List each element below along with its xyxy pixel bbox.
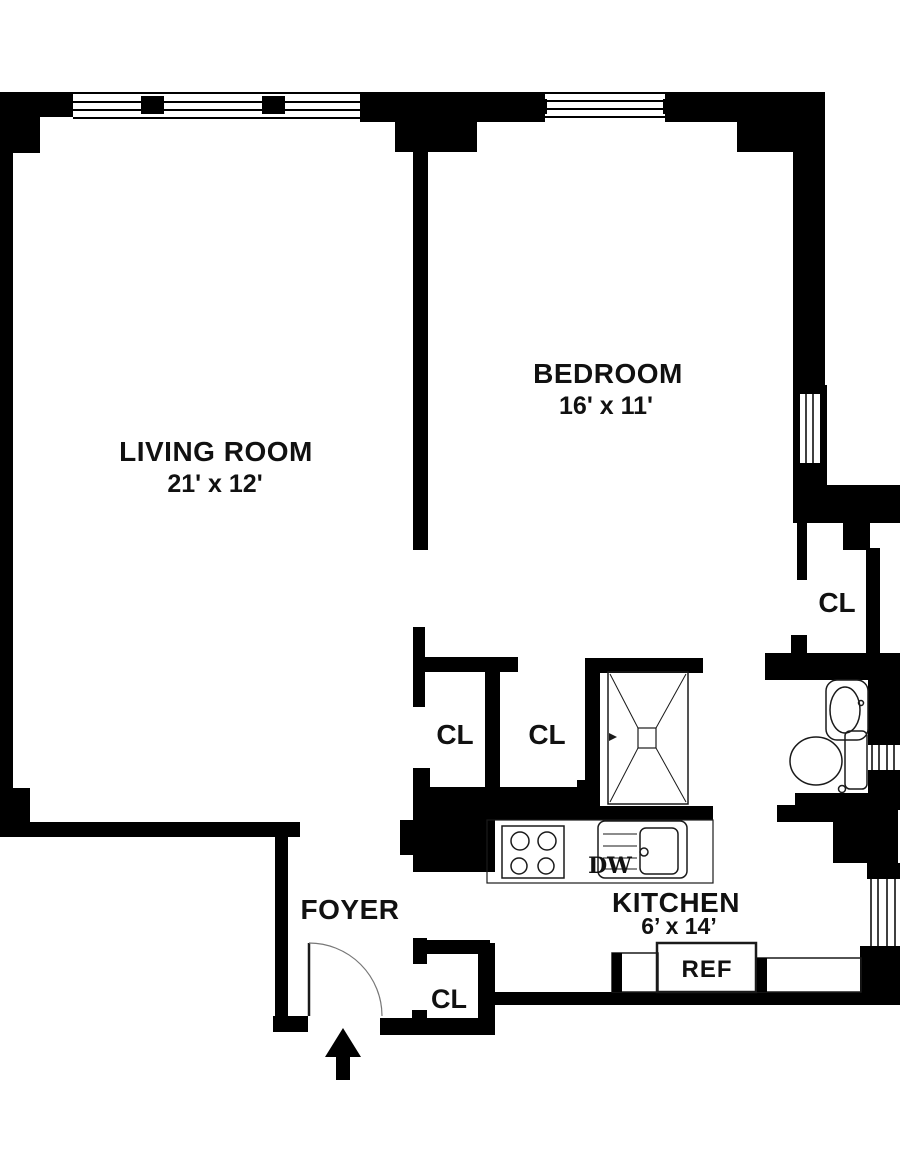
room-label-living-room: LIVING ROOM — [119, 436, 313, 467]
wall-segment — [765, 653, 900, 680]
room-label-foyer: FOYER — [301, 894, 400, 925]
dishwasher-label: DW — [588, 853, 632, 879]
wall-segment — [380, 1018, 495, 1035]
wall-segment — [413, 787, 600, 808]
wall-segment — [793, 485, 900, 523]
wall-segment — [833, 805, 898, 863]
kitchen-counter-right — [757, 958, 861, 992]
wall-segment — [577, 780, 600, 805]
wall-segment — [868, 770, 900, 810]
closet-label-hall-mid: CL — [528, 719, 565, 750]
stove — [502, 826, 564, 878]
wall-segment — [413, 627, 425, 707]
closet-label-hall-left: CL — [436, 719, 473, 750]
wall-segment — [585, 658, 703, 673]
wall-segment — [797, 523, 807, 580]
window-bedroom-top — [538, 92, 672, 119]
window-living-room — [73, 92, 360, 119]
room-dims-bedroom: 16' x 11' — [559, 392, 653, 420]
room-dims-kitchen: 6’ x 14’ — [641, 913, 716, 939]
room-dims-living-room: 21' x 12' — [167, 470, 262, 498]
wall-segment — [395, 117, 477, 152]
window-bedroom-side — [793, 385, 827, 472]
wall-segment — [843, 523, 870, 550]
wall-segment — [795, 793, 870, 807]
wall-segment — [793, 122, 825, 388]
wall-segment — [868, 680, 900, 745]
entry-arrow-icon — [325, 1028, 361, 1080]
wall-segment — [0, 822, 300, 837]
floor-plan-page: LIVING ROOM 21' x 12' BEDROOM 16' x 11' … — [0, 0, 900, 1165]
wall-segment — [400, 820, 413, 855]
wall-segment — [585, 658, 600, 782]
wall-segment — [275, 835, 288, 1018]
walls — [0, 92, 900, 1035]
wall-segment — [866, 548, 880, 655]
entry-door — [309, 943, 382, 1016]
window-kitchen — [867, 879, 900, 946]
wall-segment — [777, 805, 835, 822]
closet-label-foyer: CL — [431, 984, 467, 1014]
room-label-bedroom: BEDROOM — [533, 358, 683, 389]
window-bathroom — [868, 745, 900, 770]
wall-segment — [412, 1010, 427, 1028]
wall-segment — [478, 943, 495, 1035]
refrigerator-label: REF — [682, 956, 733, 983]
wall-segment — [273, 1016, 308, 1032]
closet-label-right-wing: CL — [818, 587, 855, 618]
wall-segment — [490, 992, 900, 1005]
wall-segment — [0, 117, 13, 822]
wall-segment — [413, 150, 428, 550]
wall-segment — [485, 668, 500, 790]
kitchen-counter-left — [612, 953, 658, 992]
wall-segment — [480, 806, 713, 820]
shower — [608, 672, 688, 804]
wall-segment — [867, 863, 900, 879]
wall-segment — [425, 657, 518, 672]
wall-segment — [791, 635, 807, 655]
wall-segment — [13, 788, 30, 822]
floor-plan: LIVING ROOM 21' x 12' BEDROOM 16' x 11' … — [0, 0, 900, 1165]
